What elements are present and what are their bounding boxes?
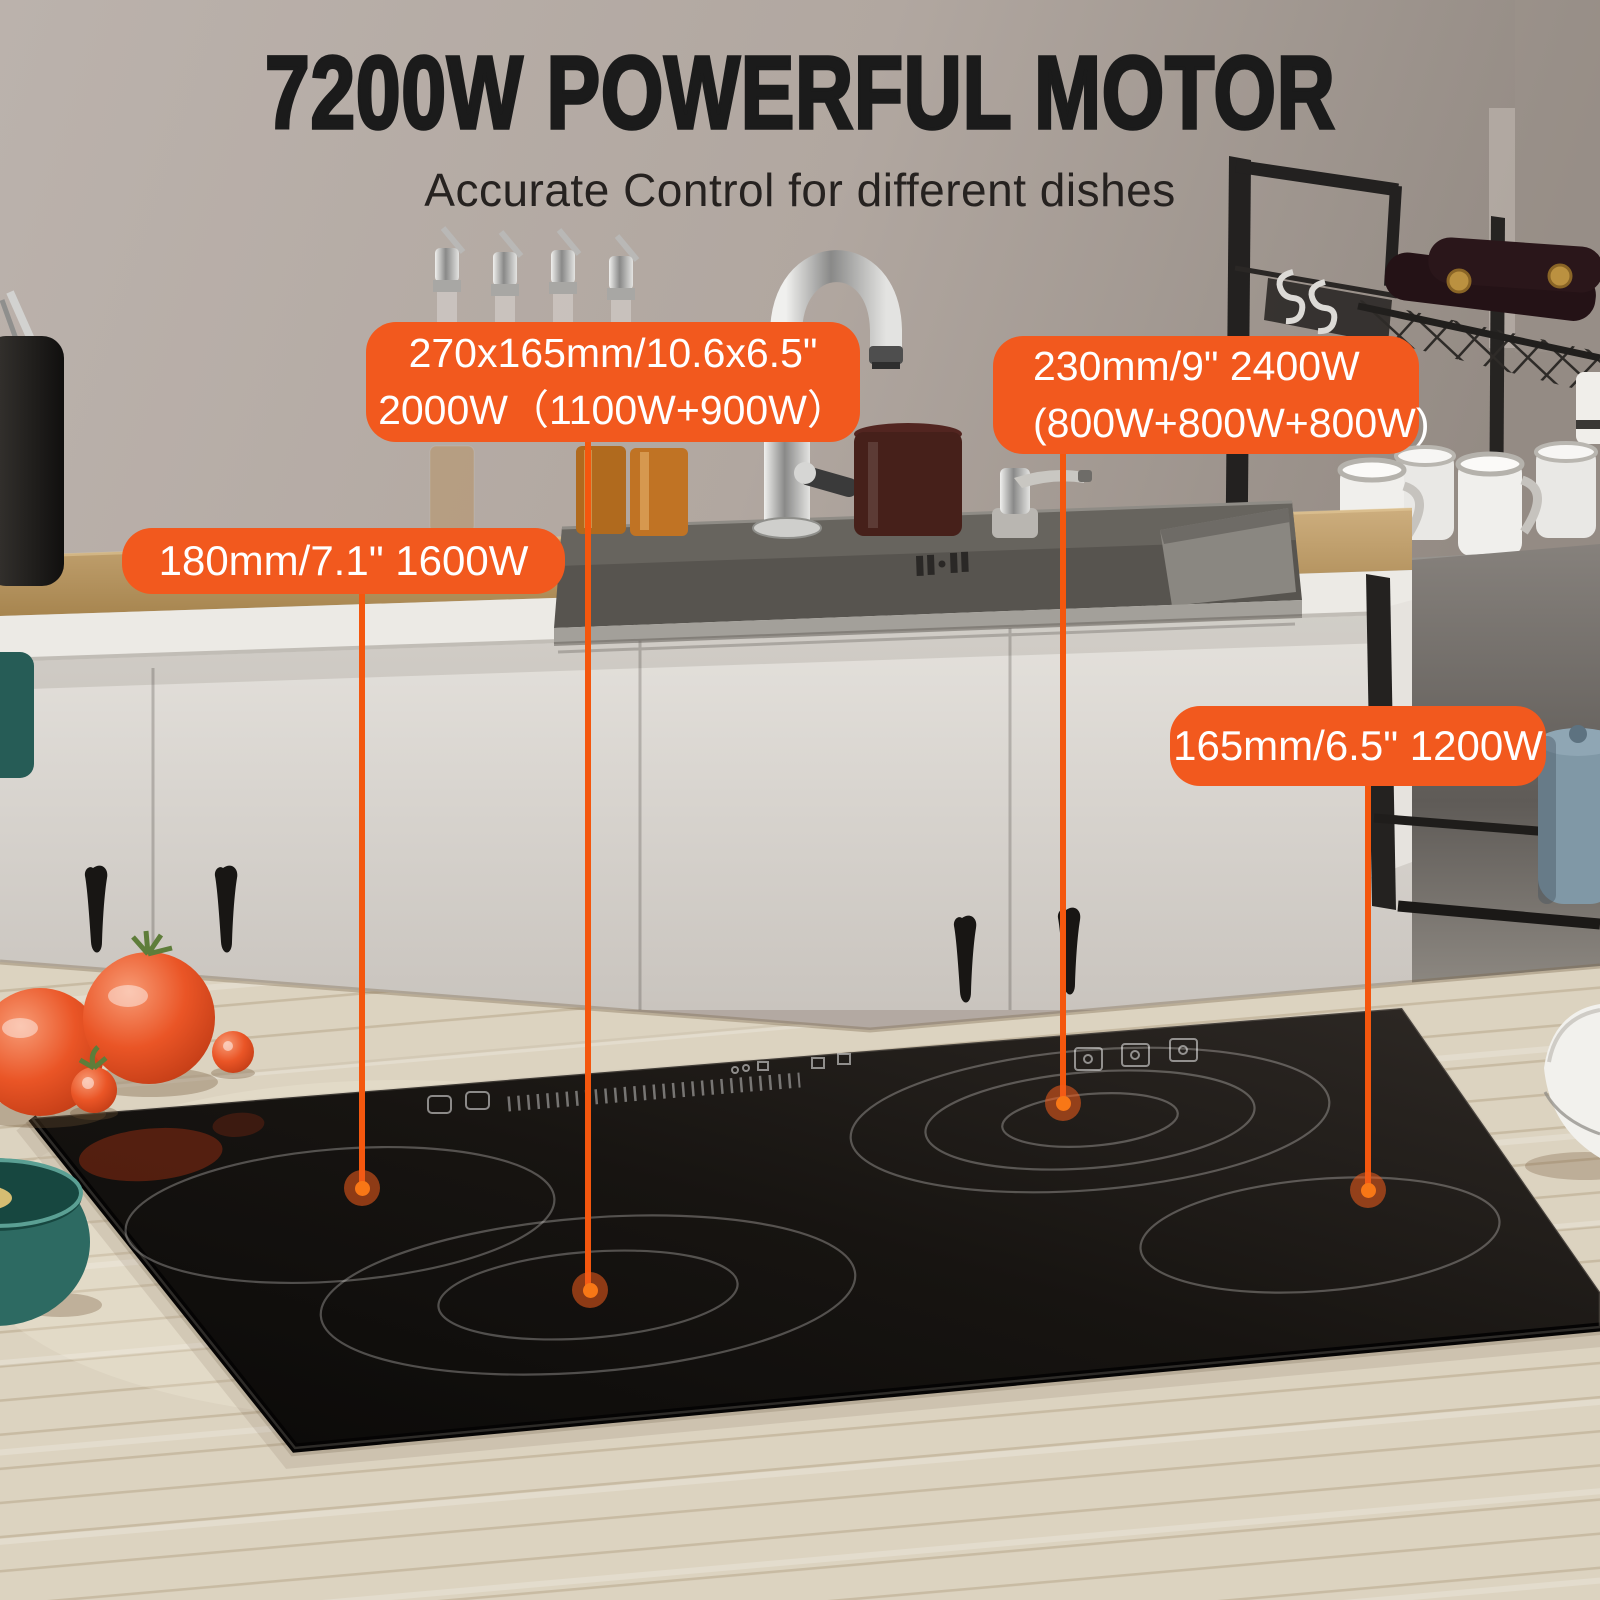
burner-marker-left bbox=[344, 1170, 380, 1206]
marker-core bbox=[1361, 1183, 1376, 1198]
callout-left-burner: 180mm/7.1" 1600W bbox=[122, 528, 565, 594]
pointer-line-right-burner bbox=[1365, 784, 1371, 1190]
subheadline: Accurate Control for different dishes bbox=[0, 163, 1600, 217]
callout-right-burner: 165mm/6.5" 1200W bbox=[1170, 706, 1546, 786]
burner-marker-oval bbox=[572, 1272, 608, 1308]
marker-core bbox=[355, 1181, 370, 1196]
burner-marker-triple bbox=[1045, 1085, 1081, 1121]
pointer-line-oval-burner bbox=[585, 440, 591, 1290]
pointer-line-left-burner bbox=[359, 592, 365, 1188]
product-infographic: 7200W POWERFUL MOTOR Accurate Control fo… bbox=[0, 0, 1600, 1600]
callout-line: 165mm/6.5" 1200W bbox=[1170, 722, 1546, 770]
marker-core bbox=[1056, 1096, 1071, 1111]
headline-text: 7200W POWERFUL MOTOR bbox=[265, 34, 1336, 152]
pointer-line-triple-burner bbox=[1060, 452, 1066, 1103]
trash-bin bbox=[1538, 725, 1600, 904]
callout-line: (800W+800W+800W) bbox=[1033, 395, 1419, 452]
callout-triple-burner: 230mm/9" 2400W (800W+800W+800W) bbox=[993, 336, 1419, 454]
marker-core bbox=[583, 1283, 598, 1298]
burner-marker-right bbox=[1350, 1172, 1386, 1208]
callout-line: 180mm/7.1" 1600W bbox=[122, 537, 565, 585]
callout-line: 230mm/9" 2400W bbox=[1033, 338, 1419, 395]
headline: 7200W POWERFUL MOTOR bbox=[0, 34, 1600, 152]
canister bbox=[1576, 372, 1600, 444]
callout-line: 270x165mm/10.6x6.5" bbox=[366, 325, 860, 382]
callout-oval-burner: 270x165mm/10.6x6.5" 2000W（1100W+900W） bbox=[366, 322, 860, 442]
teal-jar bbox=[0, 652, 34, 778]
callout-line: 2000W（1100W+900W） bbox=[366, 382, 860, 439]
kitchen-scene bbox=[0, 0, 1600, 1600]
brown-bottle bbox=[854, 423, 962, 536]
